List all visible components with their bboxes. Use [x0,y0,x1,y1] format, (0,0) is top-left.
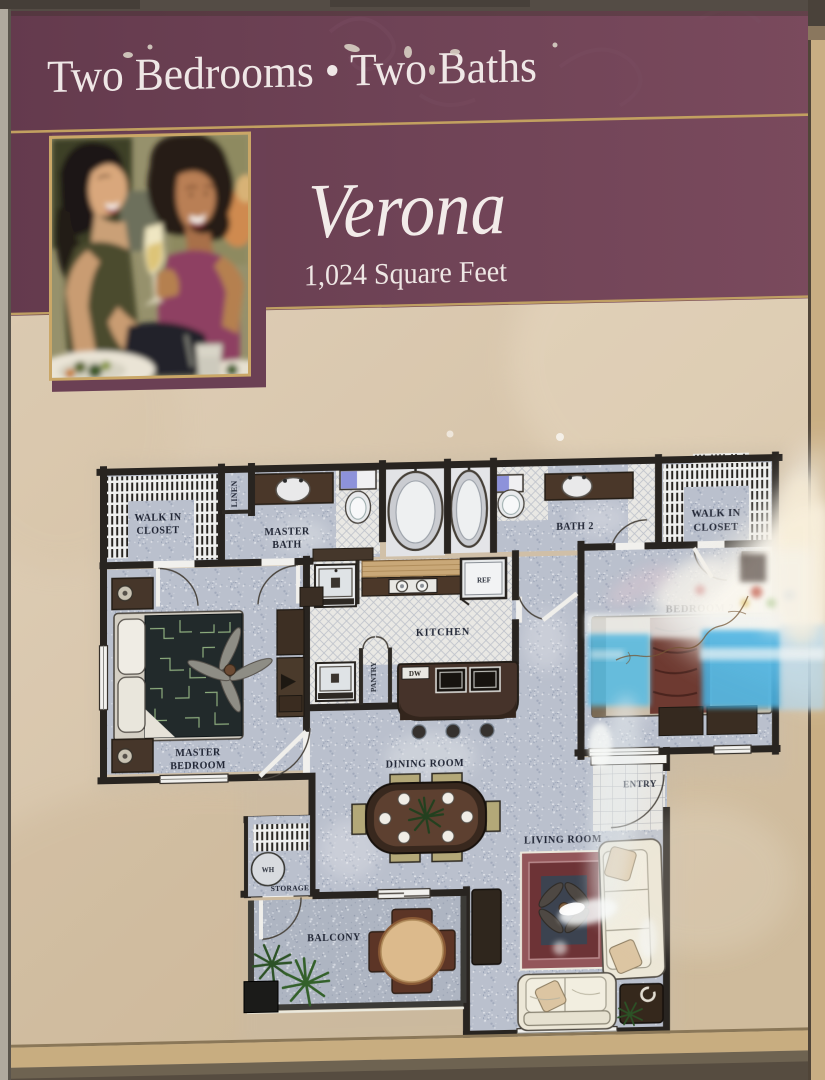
svg-text:WH: WH [262,866,275,874]
svg-text:DW: DW [409,670,421,678]
svg-text:DINING ROOM: DINING ROOM [386,758,465,771]
svg-text:1,024 Square Feet: 1,024 Square Feet [304,255,508,292]
svg-text:WALK IN: WALK IN [691,508,740,520]
svg-text:LINEN: LINEN [230,480,239,507]
svg-text:Two Bedrooms • Two Baths: Two Bedrooms • Two Baths [47,40,537,102]
svg-text:MASTER: MASTER [175,747,221,759]
svg-text:BATH: BATH [272,539,301,551]
svg-text:BATH 2: BATH 2 [556,521,593,533]
svg-text:Verona: Verona [308,163,506,254]
svg-text:REF: REF [477,576,491,584]
svg-text:CLOSET: CLOSET [137,525,180,537]
svg-text:PANTRY: PANTRY [369,661,378,692]
svg-text:MASTER: MASTER [264,526,310,538]
svg-text:CLOSET: CLOSET [693,522,738,534]
svg-text:KITCHEN: KITCHEN [416,627,470,639]
svg-text:BEDROOM: BEDROOM [170,760,226,772]
svg-text:STORAGE: STORAGE [271,883,310,893]
svg-text:BALCONY: BALCONY [307,932,361,944]
svg-text:WALK IN: WALK IN [135,512,182,524]
